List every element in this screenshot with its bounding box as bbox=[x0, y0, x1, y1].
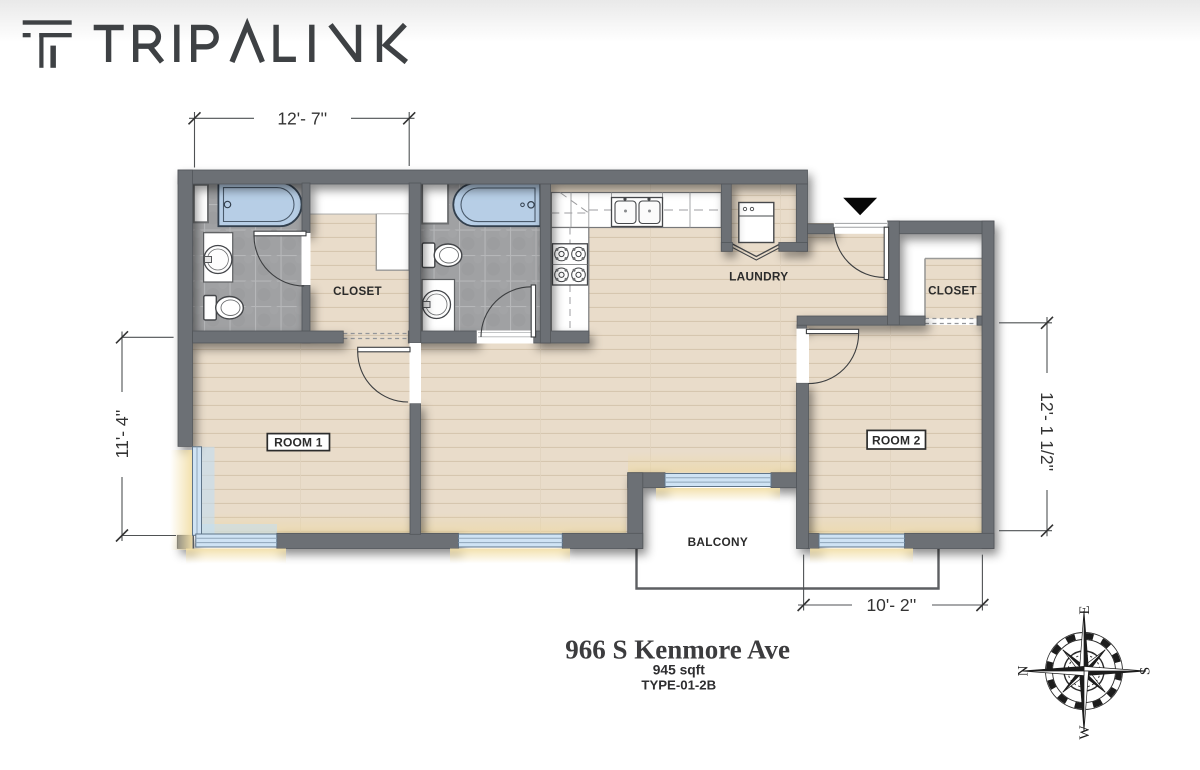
svg-text:E: E bbox=[1077, 605, 1093, 614]
svg-text:ROOM 1: ROOM 1 bbox=[274, 436, 323, 450]
svg-text:10'- 2'': 10'- 2'' bbox=[866, 595, 916, 615]
svg-text:11'- 4'': 11'- 4'' bbox=[112, 410, 132, 459]
svg-text:945 sqft: 945 sqft bbox=[653, 663, 706, 678]
svg-text:BALCONY: BALCONY bbox=[688, 535, 748, 549]
svg-text:12'- 7'': 12'- 7'' bbox=[277, 109, 327, 129]
svg-text:ROOM 2: ROOM 2 bbox=[872, 433, 921, 447]
svg-text:12'- 1 1/2'': 12'- 1 1/2'' bbox=[1037, 392, 1057, 471]
svg-text:W: W bbox=[1077, 725, 1093, 740]
svg-text:CLOSET: CLOSET bbox=[928, 284, 977, 297]
svg-text:966 S Kenmore Ave: 966 S Kenmore Ave bbox=[565, 635, 790, 665]
svg-text:LAUNDRY: LAUNDRY bbox=[729, 269, 788, 283]
svg-text:CLOSET: CLOSET bbox=[333, 285, 382, 298]
svg-text:S: S bbox=[1138, 667, 1154, 675]
svg-text:TYPE-01-2B: TYPE-01-2B bbox=[641, 678, 716, 693]
svg-text:N: N bbox=[1016, 665, 1032, 676]
